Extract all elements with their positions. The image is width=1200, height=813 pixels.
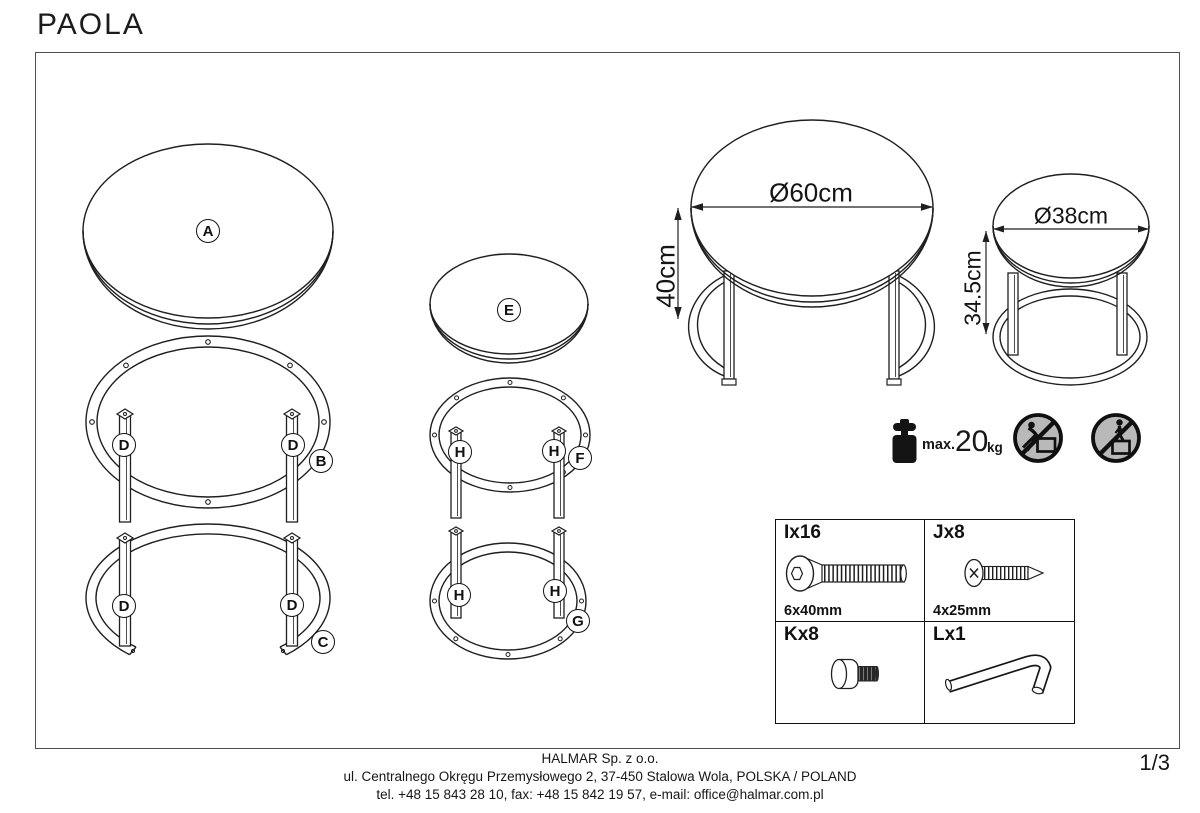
part-label-d: D (281, 433, 305, 457)
part-label-d: D (280, 593, 304, 617)
small-table-height: 34.5cm (960, 250, 987, 325)
dimension-drawing-large (674, 120, 934, 385)
leg-parts-lower (117, 533, 300, 646)
hardware-cell-i: Ix16 6x40mm (776, 520, 925, 622)
hardware-size: 6x40mm (784, 603, 842, 619)
part-label-h: H (543, 579, 567, 603)
small-table-diameter: Ø38cm (1034, 203, 1108, 230)
footer-contact: tel. +48 15 843 28 10, fax: +48 15 842 1… (0, 787, 1200, 802)
part-label-e: E (497, 298, 521, 322)
small-leg-parts-lower (449, 527, 566, 618)
large-table-height: 40cm (651, 244, 682, 308)
footer-address: ul. Centralnego Okręgu Przemysłowego 2, … (0, 769, 1200, 784)
max-load-label: max. (922, 437, 955, 453)
large-table-diameter: Ø60cm (769, 178, 853, 209)
part-label-a: A (196, 219, 220, 243)
no-leaning-on-table-icon (1009, 409, 1067, 467)
page-number: 1/3 (1090, 750, 1170, 776)
part-label-f: F (568, 446, 592, 470)
hardware-cell-k: Kx8 (776, 622, 925, 723)
hardware-label: Ix16 (784, 522, 821, 544)
hardware-label: Jx8 (933, 522, 965, 544)
diagram-frame: A B C D D D D E F G H H H H Ø60cm 40cm Ø… (35, 52, 1180, 749)
footer-company: HALMAR Sp. z o.o. (0, 751, 1200, 766)
hardware-label: Kx8 (784, 624, 819, 646)
part-label-b: B (309, 449, 333, 473)
leg-parts-upper (117, 409, 300, 522)
part-label-h: H (448, 440, 472, 464)
no-standing-on-table-icon (1087, 409, 1145, 467)
part-label-h: H (447, 583, 471, 607)
hardware-table: Ix16 6x40mm Jx8 4x25mm Kx8 Lx1 (775, 519, 1075, 724)
max-load-unit: kg (987, 440, 1003, 455)
hardware-size: 4x25mm (933, 603, 991, 619)
max-load-value: 20 (955, 425, 988, 459)
part-label-c: C (311, 630, 335, 654)
hardware-label: Lx1 (933, 624, 966, 646)
part-label-d: D (112, 433, 136, 457)
hardware-cell-j: Jx8 4x25mm (925, 520, 1074, 622)
page-title: PAOLA (37, 8, 145, 42)
weight-icon (893, 419, 917, 463)
part-label-h: H (542, 439, 566, 463)
part-label-d: D (112, 594, 136, 618)
part-label-g: G (566, 609, 590, 633)
hardware-cell-l: Lx1 (925, 622, 1074, 723)
